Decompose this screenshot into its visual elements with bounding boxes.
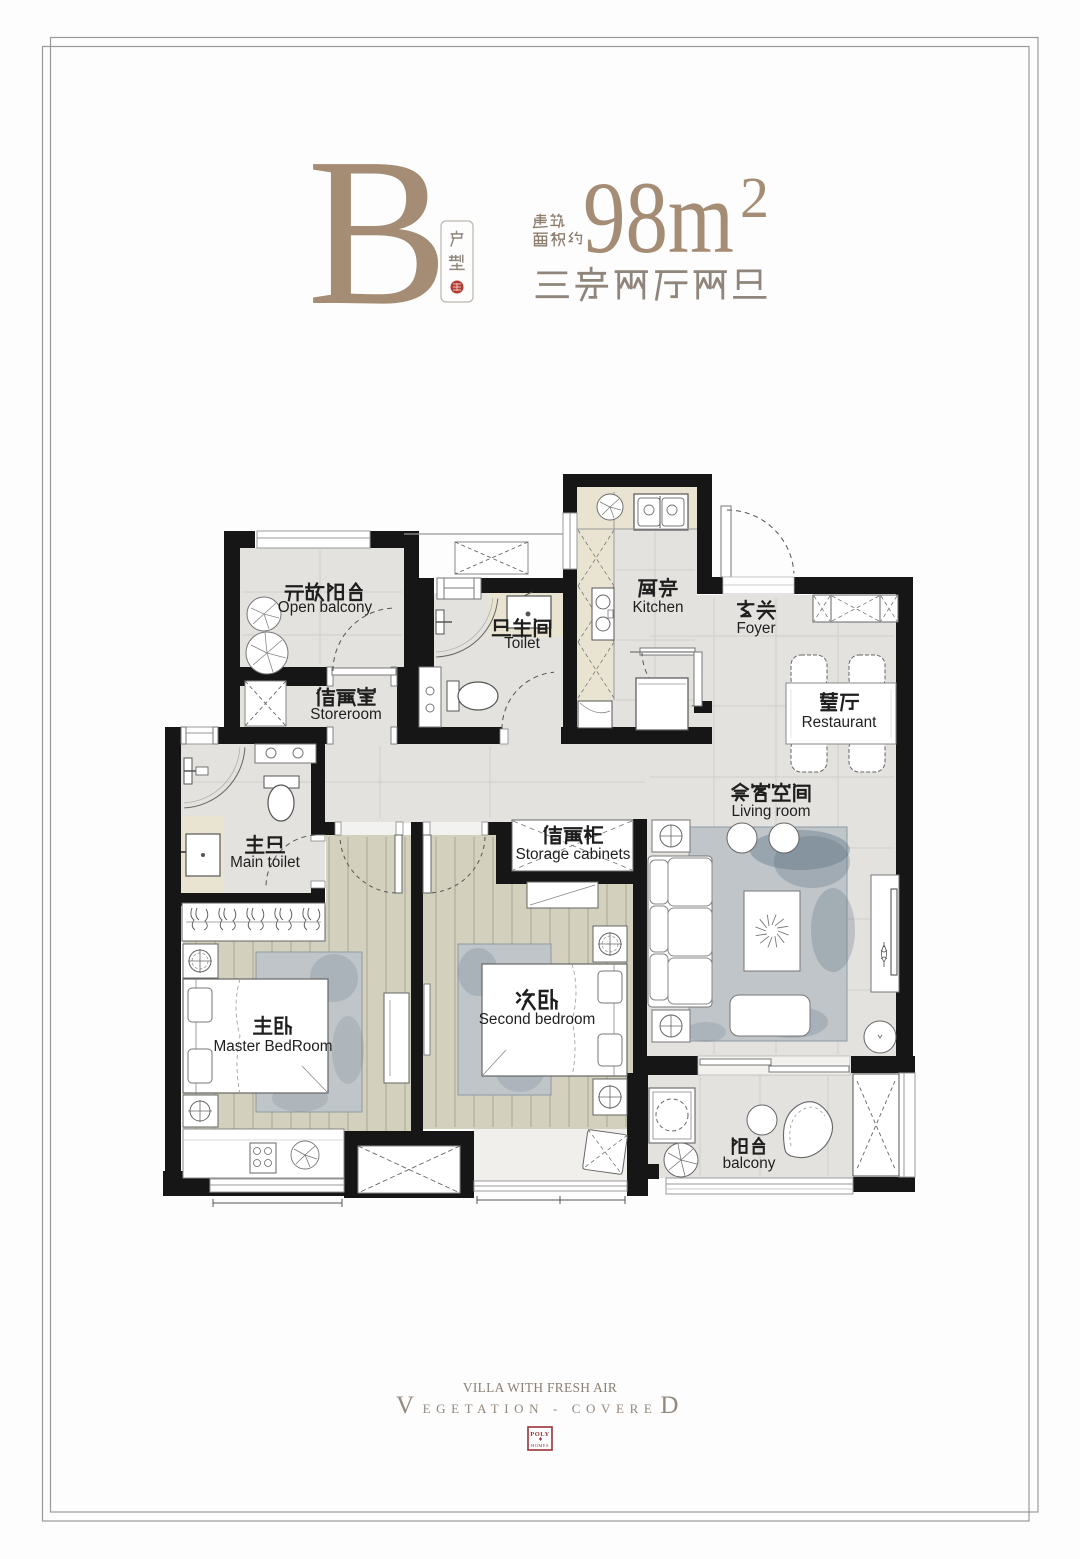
svg-text:HOMES: HOMES xyxy=(531,1443,549,1448)
svg-text:Foyer: Foyer xyxy=(736,620,775,637)
svg-text:Second bedroom: Second bedroom xyxy=(479,1011,596,1028)
svg-text:Main toilet: Main toilet xyxy=(230,854,300,871)
svg-text:balcony: balcony xyxy=(723,1155,776,1172)
svg-text:B: B xyxy=(307,114,448,349)
svg-text:Open balcony: Open balcony xyxy=(278,599,373,616)
svg-text:Storeroom: Storeroom xyxy=(310,706,381,723)
svg-text:Toilet: Toilet xyxy=(504,635,540,652)
svg-text:VILLA WITH FRESH AIR: VILLA WITH FRESH AIR xyxy=(463,1380,617,1395)
svg-text:Kitchen: Kitchen xyxy=(632,599,683,616)
svg-text:Restaurant: Restaurant xyxy=(802,714,878,731)
svg-text:Living room: Living room xyxy=(731,803,810,820)
svg-text:POLY: POLY xyxy=(530,1431,549,1438)
svg-text:Storage cabinets: Storage cabinets xyxy=(516,846,631,863)
svg-text:2: 2 xyxy=(740,165,769,230)
svg-text:Master BedRoom: Master BedRoom xyxy=(213,1038,332,1055)
svg-text:98m: 98m xyxy=(583,161,734,275)
